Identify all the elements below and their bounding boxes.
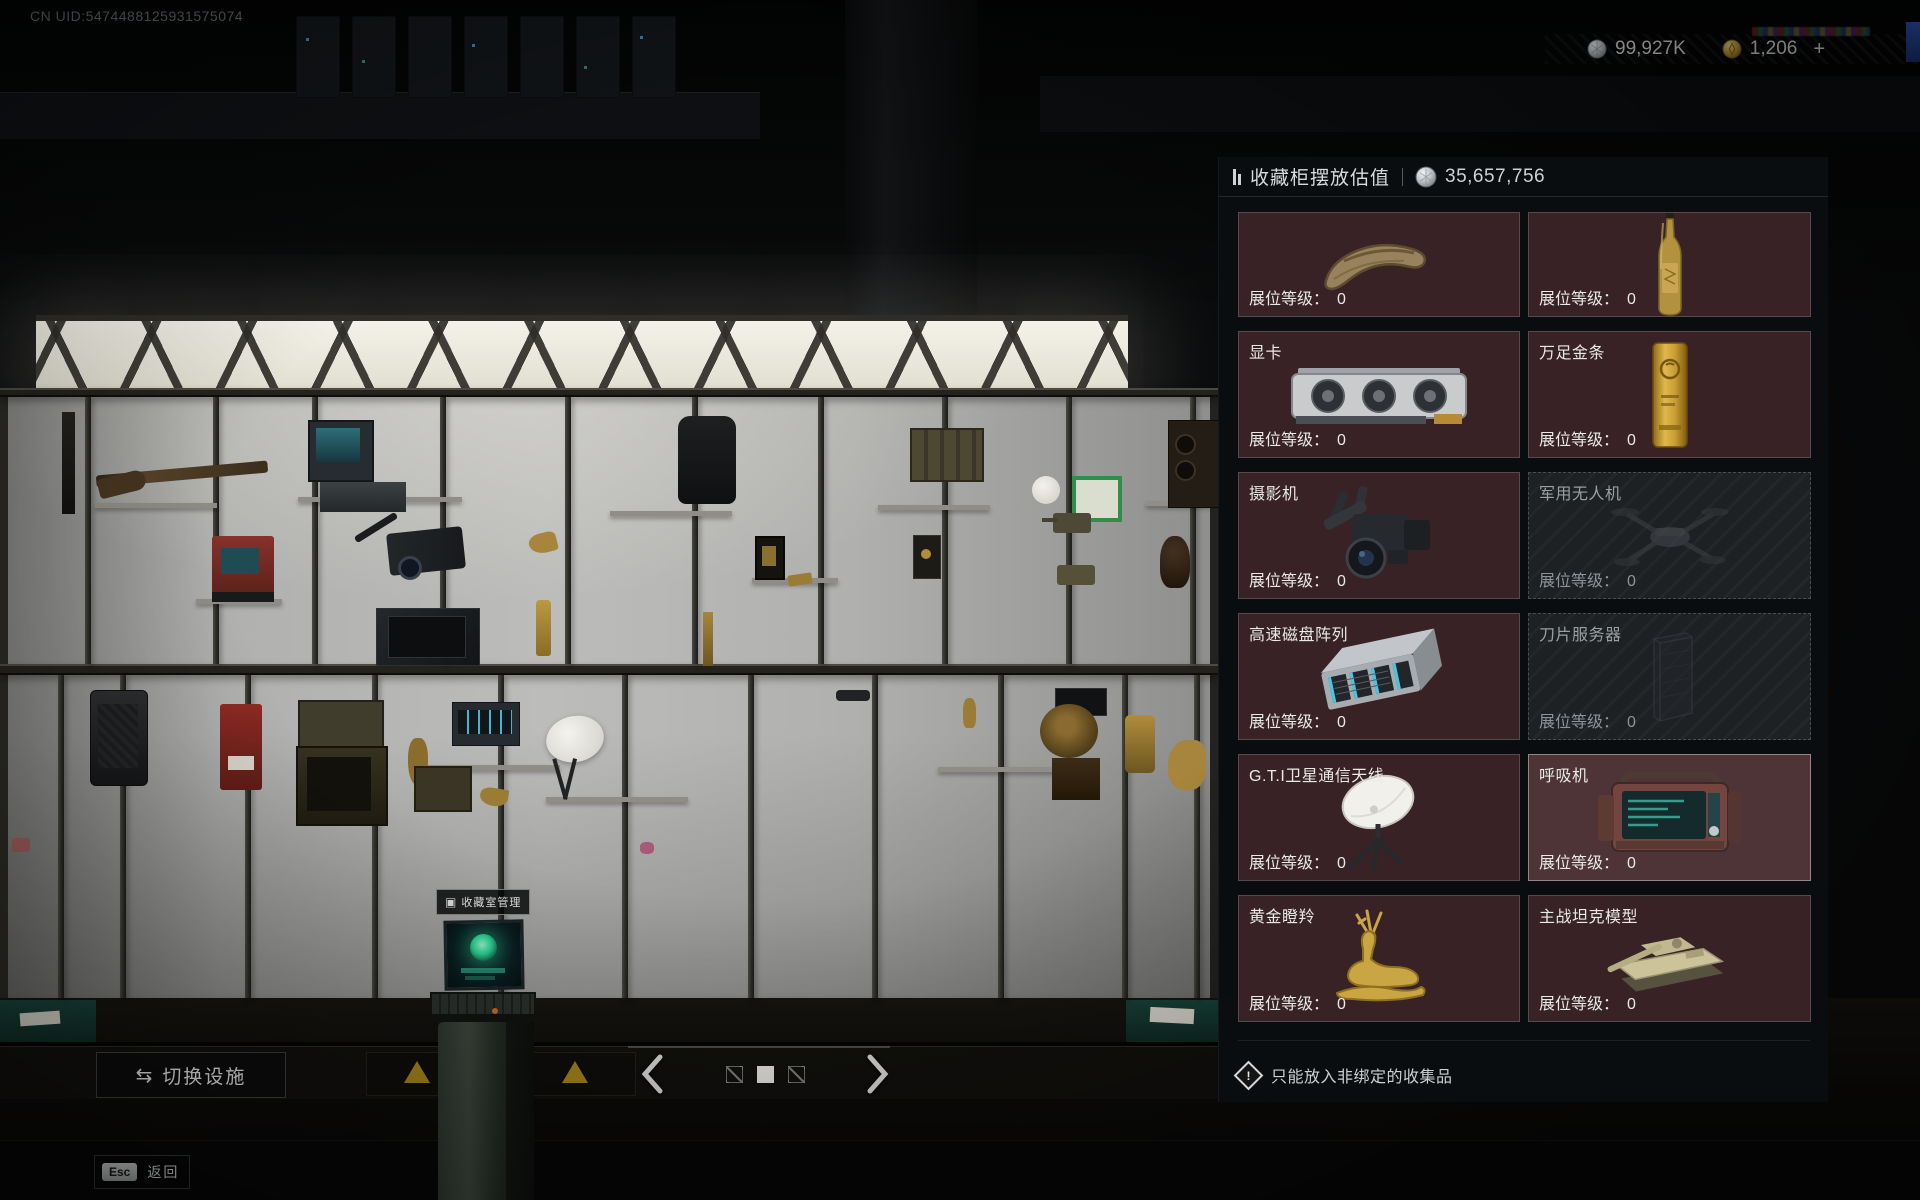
collection-card[interactable]: 万足金条 展位等级：0 <box>1528 331 1811 458</box>
collection-card[interactable]: 刀片服务器 展位等级：0 <box>1528 613 1811 740</box>
rack-light <box>584 66 587 69</box>
ceiling-rack <box>408 16 452 98</box>
footer-divider <box>1238 1040 1810 1041</box>
collection-card[interactable]: 展位等级：0 <box>1238 212 1520 317</box>
item-name: 黄金瞪羚 <box>1249 903 1315 927</box>
rack-light <box>640 36 643 39</box>
collection-card[interactable]: 显卡 展位等级：0 <box>1238 331 1520 458</box>
stand-level: 展位等级：0 <box>1249 567 1346 591</box>
stand-level: 展位等级：0 <box>1539 426 1636 450</box>
shelf-item-gramophone-horn <box>1040 704 1098 758</box>
stand-level: 展位等级：0 <box>1539 990 1636 1014</box>
panel-header: 收藏柜摆放估值 35,657,756 <box>1219 157 1828 197</box>
page-indicators <box>726 1066 805 1083</box>
stand-level: 展位等级：0 <box>1249 708 1346 732</box>
stand-level-label: 展位等级： <box>1539 996 1619 1013</box>
shelf-item-framed-picture-inner <box>762 546 776 566</box>
shelf-item-rifle-vertical <box>62 412 75 514</box>
ceiling-beam-right <box>1040 76 1920 134</box>
switch-facility-button[interactable]: ⇆ 切换设施 <box>96 1052 286 1098</box>
wall-post <box>622 675 628 998</box>
stand-level: 展位等级：0 <box>1249 990 1346 1014</box>
header-flag-icon <box>1233 169 1241 185</box>
collection-panel: 收藏柜摆放估值 35,657,756 展位等级：0 展位等级：0 显卡 展位等级… <box>1218 157 1828 1102</box>
wall-post <box>85 397 91 664</box>
item-name: 刀片服务器 <box>1539 621 1622 645</box>
currency-gold: 1,206 + <box>1722 38 1825 61</box>
wall-post <box>872 675 878 998</box>
kiosk-screen-bar <box>465 976 495 980</box>
collection-grid: 展位等级：0 展位等级：0 显卡 展位等级：0 万足金条 展位等级：0 摄影机 … <box>1238 212 1811 1022</box>
shelf-item-field-monitor-body <box>320 482 406 512</box>
shelf-item-red-radio-base <box>212 592 274 602</box>
collection-total-value: 35,657,756 <box>1445 166 1545 188</box>
wall-post <box>565 397 571 664</box>
ceiling-rack <box>352 16 396 98</box>
shelf-item-red-toolkit-label <box>228 756 254 770</box>
stand-level-label: 展位等级： <box>1249 432 1329 449</box>
shelf-item-crt-screen <box>388 616 466 658</box>
shelf-item-case-lid <box>298 700 384 748</box>
stand-level-value: 0 <box>1337 573 1346 590</box>
gold-amount: 1,206 <box>1750 38 1798 60</box>
floor-item-pink-trinket <box>640 842 654 854</box>
stand-level: 展位等级：0 <box>1539 567 1636 591</box>
ceiling-rack <box>632 16 676 98</box>
shelf-ledge <box>938 767 1062 772</box>
ceiling-beam-left <box>0 92 760 141</box>
stand-level-value: 0 <box>1627 573 1636 590</box>
stand-level: 展位等级：0 <box>1539 285 1636 309</box>
silver-coin-icon <box>1415 166 1437 188</box>
item-name: G.T.I卫星通信天线 <box>1249 762 1384 786</box>
stand-level-label: 展位等级： <box>1249 996 1329 1013</box>
wall-post <box>58 675 64 998</box>
stand-level-label: 展位等级： <box>1539 714 1619 731</box>
pager <box>640 1052 890 1096</box>
stand-level: 展位等级：0 <box>1249 285 1346 309</box>
stand-level: 展位等级：0 <box>1539 849 1636 873</box>
kiosk-label: ▣ 收藏室管理 <box>436 889 530 915</box>
item-name: 显卡 <box>1249 339 1282 363</box>
rack-light <box>472 44 475 47</box>
collection-card[interactable]: 展位等级：0 <box>1528 212 1811 317</box>
stand-level-value: 0 <box>1627 291 1636 308</box>
shelf-item-tank-barrel <box>1042 518 1058 522</box>
switch-facility-label: 切换设施 <box>162 1062 246 1089</box>
kiosk-screen-logo <box>470 934 497 961</box>
wall-post <box>998 675 1004 998</box>
shelf-item-olive-box <box>414 766 472 812</box>
stand-level-value: 0 <box>1337 855 1346 872</box>
shelf-bar-middle <box>0 664 1218 675</box>
stand-level-value: 0 <box>1337 996 1346 1013</box>
stand-level-label: 展位等级： <box>1539 432 1619 449</box>
shelf-item-tank-model-small <box>1053 513 1091 533</box>
ceiling-rack <box>576 16 620 98</box>
ceiling-rack <box>464 16 508 98</box>
stand-level-value: 0 <box>1337 714 1346 731</box>
shelf-item-speaker-grill <box>98 704 138 768</box>
collection-card[interactable]: 呼吸机 展位等级：0 <box>1528 754 1811 881</box>
shelf-item-gold-deer-figure <box>1168 740 1206 790</box>
kiosk-keyboard-base <box>428 1014 538 1022</box>
chevron-left-icon <box>640 1054 664 1094</box>
desk-paper-left <box>20 1011 61 1027</box>
chevron-right-icon <box>866 1054 890 1094</box>
wall-post <box>213 397 219 664</box>
add-currency-button[interactable]: + <box>1813 38 1825 61</box>
stand-level-label: 展位等级： <box>1249 573 1329 590</box>
shelf-ledge <box>610 511 732 516</box>
shelf-item-gold-bottle <box>536 600 551 656</box>
esc-key-badge: Esc <box>102 1163 137 1181</box>
panel-footer: ! 只能放入非绑定的收集品 <box>1238 1055 1810 1095</box>
kiosk-screen-bar <box>461 968 505 973</box>
floor-lower-strip <box>0 1140 1920 1200</box>
stand-level-value: 0 <box>1627 714 1636 731</box>
watermark-glitch <box>1752 27 1870 36</box>
currency-silver: 99,927K <box>1587 38 1686 60</box>
stand-level-label: 展位等级： <box>1539 573 1619 590</box>
screen-edge-artifact <box>1906 22 1920 62</box>
footer-note: 只能放入非绑定的收集品 <box>1271 1063 1453 1087</box>
stand-level-value: 0 <box>1627 432 1636 449</box>
back-button[interactable]: Esc 返回 <box>94 1155 190 1189</box>
kiosk-pedestal-shade <box>506 1022 534 1200</box>
shelf-item-gold-rifle <box>703 612 713 666</box>
shelf-item-gramophone-base <box>1052 758 1100 800</box>
desk-paper-right <box>1150 1007 1195 1024</box>
rack-light <box>306 38 309 41</box>
stand-level: 展位等级：0 <box>1249 849 1346 873</box>
gold-coin-icon <box>1722 39 1742 59</box>
shelf-item-reel <box>1175 434 1196 455</box>
shelf-item-white-disc <box>1032 476 1060 504</box>
stand-level-label: 展位等级： <box>1539 291 1619 308</box>
item-name: 呼吸机 <box>1539 762 1589 786</box>
shelf-item-ammo-crate <box>910 428 984 482</box>
stand-level-value: 0 <box>1627 996 1636 1013</box>
item-name: 高速磁盘阵列 <box>1249 621 1348 645</box>
pager-divider <box>628 1046 890 1048</box>
wall-post <box>748 675 754 998</box>
shelf-item-binoculars <box>836 690 870 701</box>
kiosk-indicator-light <box>492 1008 498 1014</box>
stand-level: 展位等级：0 <box>1539 708 1636 732</box>
shelf-item-case-foam <box>307 757 371 811</box>
silver-coin-icon <box>1587 39 1607 59</box>
stand-level-label: 展位等级： <box>1249 855 1329 872</box>
shelf-item-red-radio-screen <box>221 548 259 574</box>
item-name: 军用无人机 <box>1539 480 1622 504</box>
shelf-item-gold-figurine <box>963 698 976 728</box>
collection-card[interactable]: 黄金瞪羚 展位等级：0 <box>1238 895 1520 1022</box>
warning-icon: ! <box>1234 1060 1264 1090</box>
collection-card[interactable]: 军用无人机 展位等级：0 <box>1528 472 1811 599</box>
shelf-item-camcorder-lens <box>398 556 422 580</box>
stand-level-label: 展位等级： <box>1249 291 1329 308</box>
ceiling-light-truss <box>36 315 1128 392</box>
ceiling-gap-left <box>0 300 36 395</box>
kiosk-label-text: 收藏室管理 <box>461 894 521 910</box>
silver-amount: 99,927K <box>1615 38 1686 60</box>
item-name: 主战坦克模型 <box>1539 903 1638 927</box>
kiosk-keyboard <box>430 992 536 1016</box>
game-screen: ▣ 收藏室管理 CN UID:5474488125931575074 99,92… <box>0 0 1920 1200</box>
stand-level-value: 0 <box>1337 432 1346 449</box>
shelf-item-red-toolkit <box>220 704 262 790</box>
cabinet-icon: ▣ <box>445 896 456 908</box>
page-indicator-1[interactable] <box>726 1066 743 1083</box>
collection-card[interactable]: 主战坦克模型 展位等级：0 <box>1528 895 1811 1022</box>
currency-bar: 99,927K 1,206 + <box>1545 34 1920 64</box>
switch-arrows-icon: ⇆ <box>136 1063 153 1088</box>
collection-card[interactable]: 摄影机 展位等级：0 <box>1238 472 1520 599</box>
collection-card[interactable]: 高速磁盘阵列 展位等级：0 <box>1238 613 1520 740</box>
shelf-item-tank-model-small <box>1057 565 1095 585</box>
wall-edge-left <box>0 392 8 1010</box>
ceiling-rack <box>520 16 564 98</box>
stand-level-label: 展位等级： <box>1249 714 1329 731</box>
page-indicator-3[interactable] <box>788 1066 805 1083</box>
panel-title: 收藏柜摆放估值 <box>1250 163 1390 190</box>
stand-level-value: 0 <box>1627 855 1636 872</box>
floor-item-red-marker <box>12 838 30 852</box>
shelf-bar-top <box>0 388 1218 397</box>
shelf-item-reel <box>1175 460 1196 481</box>
header-separator <box>1402 168 1403 186</box>
shelf-item-backpack <box>678 416 736 504</box>
shelf-item-field-monitor-screen <box>316 428 360 462</box>
ceiling-rack <box>296 16 340 98</box>
back-label: 返回 <box>147 1162 179 1182</box>
prev-page-chevron[interactable] <box>640 1054 664 1094</box>
wall-post <box>1194 675 1200 998</box>
stand-level: 展位等级：0 <box>1249 426 1346 450</box>
stand-level-value: 0 <box>1337 291 1346 308</box>
collection-card[interactable]: G.T.I卫星通信天线 展位等级：0 <box>1238 754 1520 881</box>
item-name: 万足金条 <box>1539 339 1605 363</box>
shelf-ledge <box>95 503 217 508</box>
shelf-item-bronze-bust <box>1160 536 1190 588</box>
rack-light <box>362 60 365 63</box>
next-page-chevron[interactable] <box>866 1054 890 1094</box>
player-uid: CN UID:5474488125931575074 <box>30 8 243 24</box>
shelf-item-gold-car <box>1125 715 1155 773</box>
item-name: 摄影机 <box>1249 480 1299 504</box>
page-indicator-2[interactable] <box>757 1066 774 1083</box>
stand-level-label: 展位等级： <box>1539 855 1619 872</box>
wall-post <box>818 397 824 664</box>
shelf-item-medal <box>921 549 931 559</box>
shelf-item-mini-rack-lights <box>458 710 512 734</box>
shelf-ledge <box>878 505 990 510</box>
